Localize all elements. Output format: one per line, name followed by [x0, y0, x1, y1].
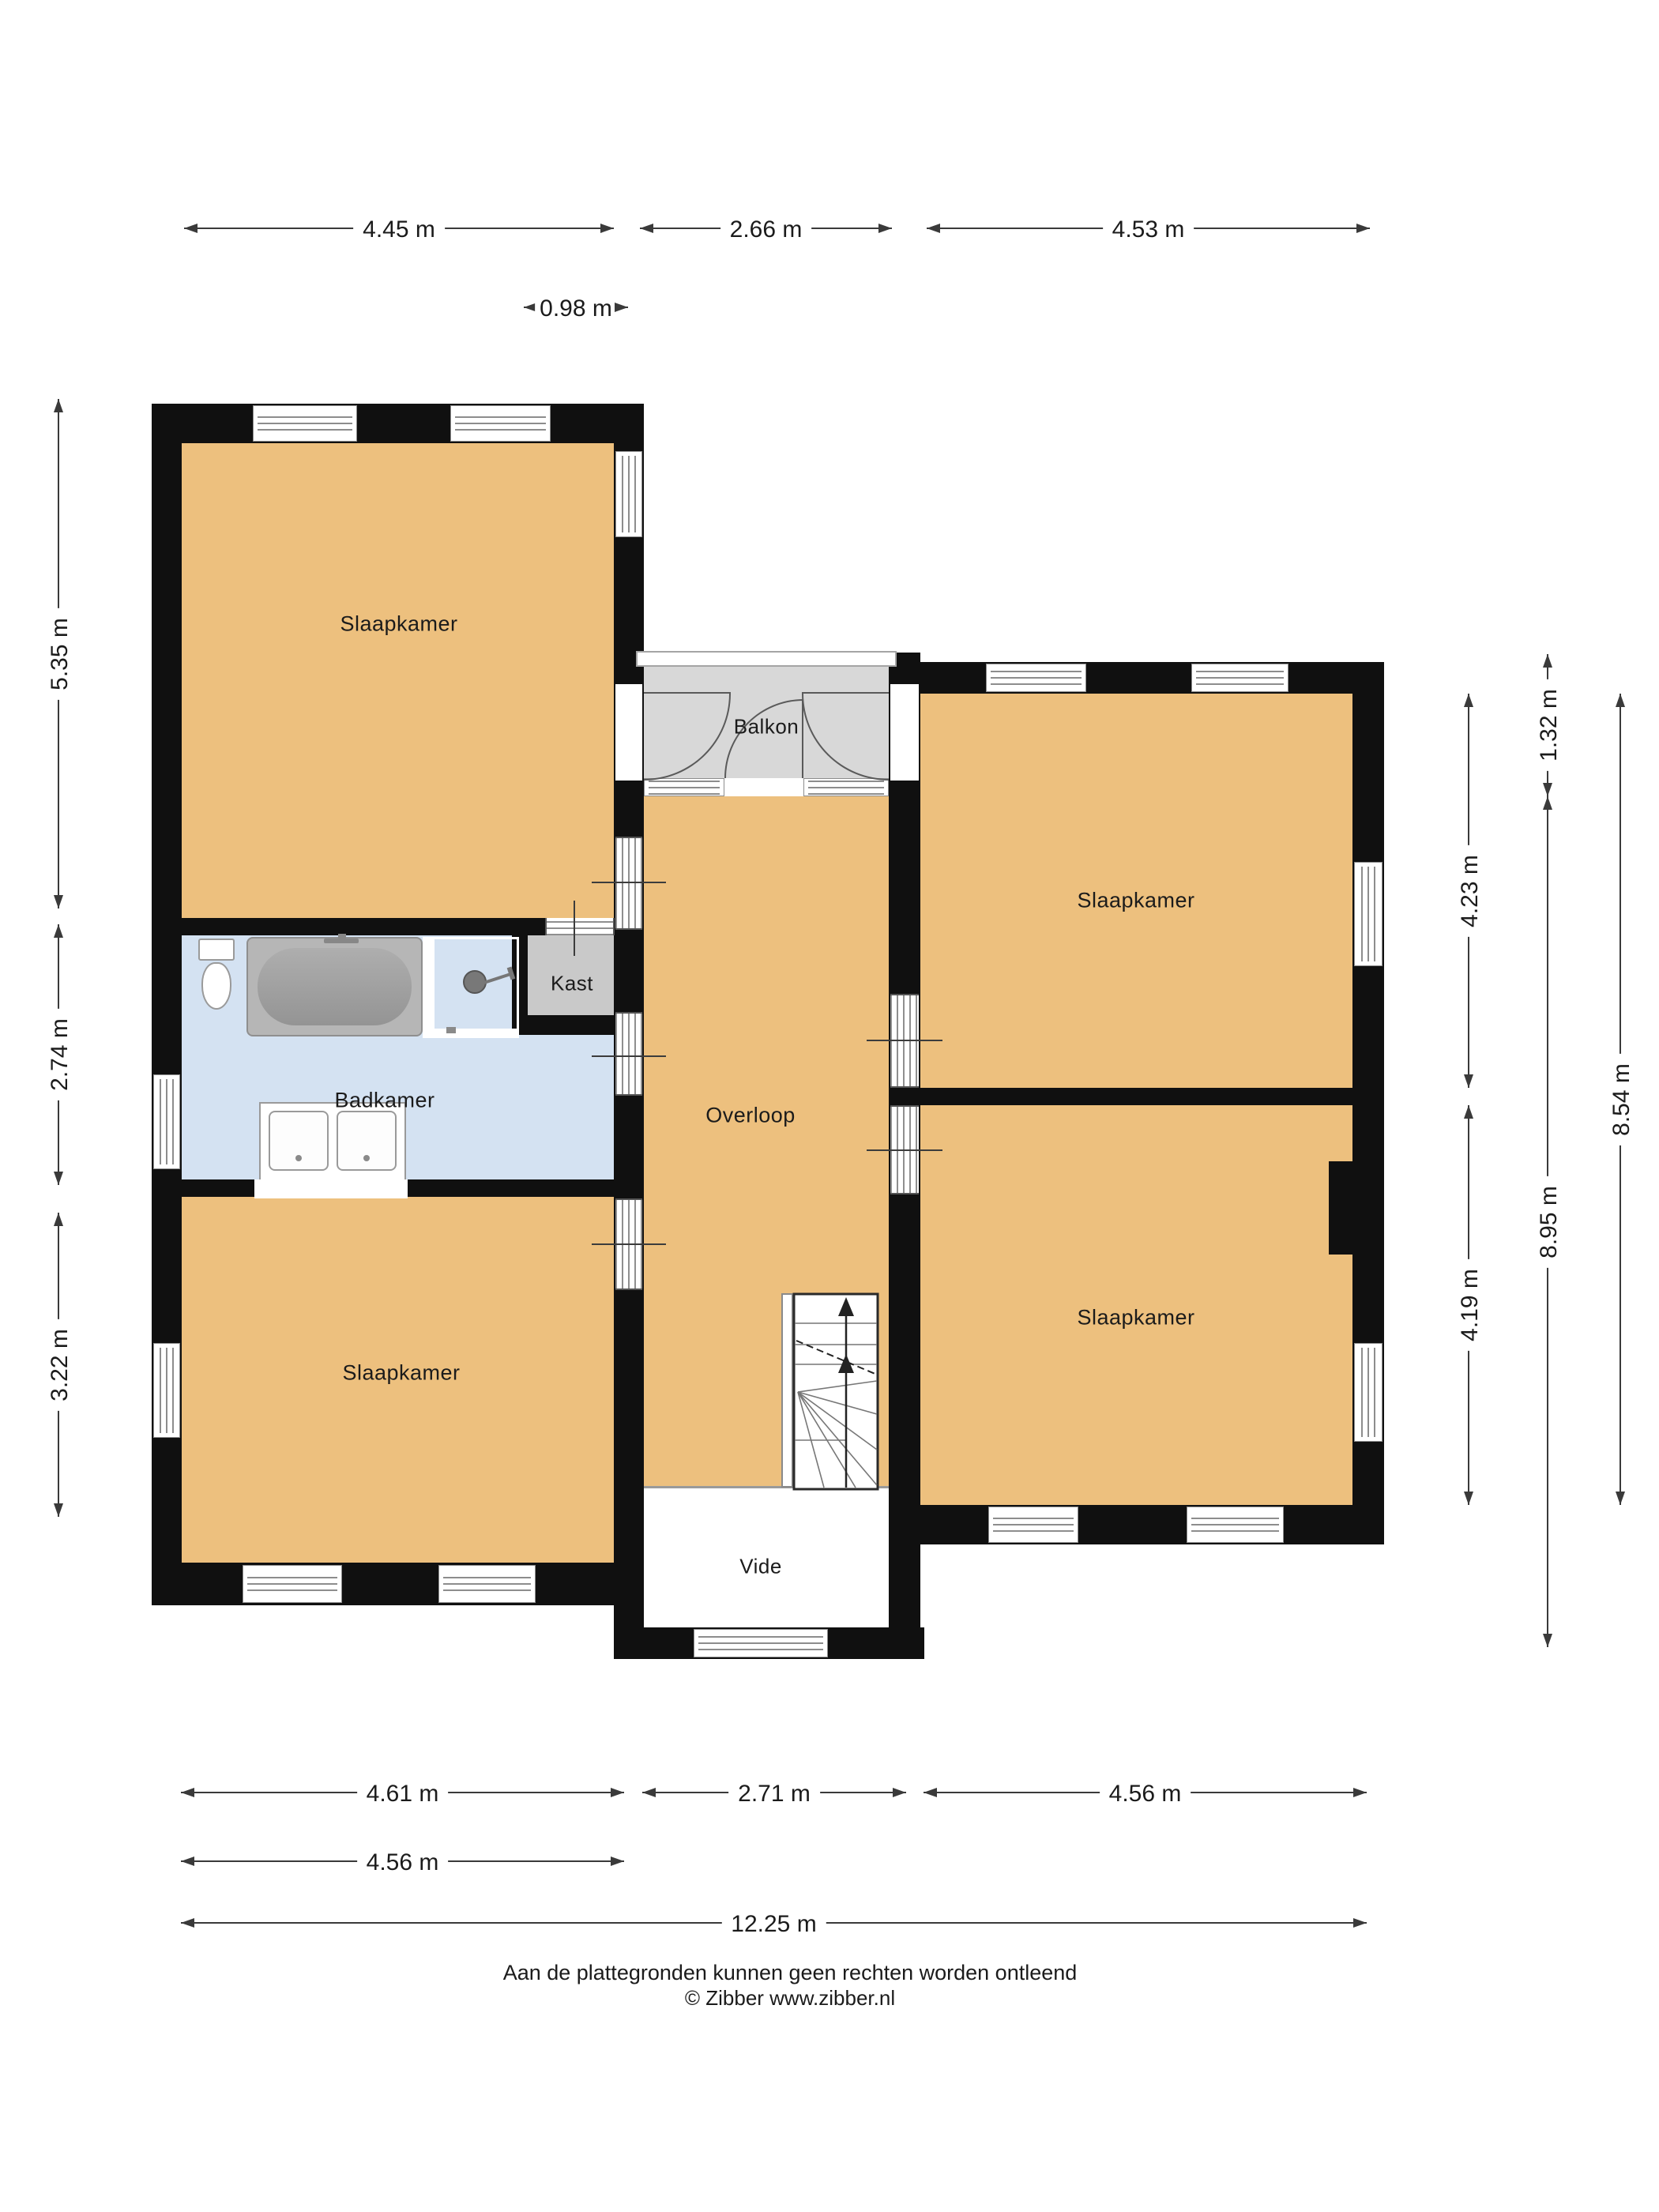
disclaimer-text: Aan de plattegronden kunnen geen rechten… [118, 1961, 1461, 1985]
door-tick [592, 1055, 666, 1057]
wall-bottom-right-section [914, 1505, 1384, 1544]
balcony-door-gap-left [615, 684, 642, 781]
dimension-left-bottom: 3.22 m [58, 1213, 59, 1517]
vanity-sill [254, 1179, 408, 1198]
dimension-label: 8.95 m [1536, 1176, 1563, 1268]
wall-closet-bottom [512, 1015, 614, 1035]
vanity-sink [269, 1111, 329, 1171]
door-tick [867, 1149, 942, 1151]
window [253, 405, 357, 442]
dimension-label: 8.54 m [1608, 1054, 1635, 1145]
toilet-bowl [201, 962, 231, 1010]
dimension-label: 2.71 m [728, 1781, 820, 1808]
window [243, 1565, 342, 1603]
dimension-bottom-right: 4.56 m [924, 1792, 1367, 1793]
window [694, 1629, 828, 1657]
staircase [781, 1288, 891, 1495]
dimension-balcony-height: 1.32 m [1547, 654, 1548, 796]
door-leaf [802, 692, 889, 694]
window [1354, 862, 1382, 966]
bathtub-faucet [324, 939, 359, 943]
door-tick [592, 1243, 666, 1245]
dimension-label: 2.74 m [47, 1009, 73, 1100]
shower-partition [423, 937, 432, 1038]
balcony-window-right [803, 778, 889, 796]
dimension-bottom-left: 4.61 m [181, 1792, 624, 1793]
dimension-right-total: 8.54 m [1619, 694, 1621, 1505]
room-label-bedroom-bottom-left: Slaapkamer [342, 1361, 460, 1386]
vanity-sink [337, 1111, 397, 1171]
window [1191, 664, 1288, 692]
sink-faucet-dot [363, 1155, 370, 1161]
toilet-tank [198, 939, 235, 961]
door-leaf [802, 699, 803, 778]
door-tick [574, 901, 575, 956]
sink-faucet-dot [295, 1155, 302, 1161]
dimension-closet-width: 0.98 m [524, 307, 628, 308]
wall-chimney-notch [1329, 1161, 1360, 1255]
dimension-middle-total: 8.95 m [1547, 796, 1548, 1647]
dimension-top-left: 4.45 m [184, 228, 614, 229]
dimension-total-width: 12.25 m [181, 1922, 1367, 1924]
door-opening-bathroom [615, 1012, 642, 1096]
bedroom-top-left-floor [182, 443, 614, 918]
wall-between-right-bedrooms [916, 1088, 1352, 1105]
bathtub-faucet [338, 934, 346, 939]
door-tick [867, 1040, 942, 1041]
balcony-door-gap-right [890, 684, 919, 781]
bathtub-basin [258, 948, 412, 1025]
room-label-closet: Kast [551, 972, 593, 996]
room-label-bedroom-top-left: Slaapkamer [340, 612, 457, 637]
dimension-label: 1.32 m [1536, 679, 1563, 771]
dimension-label: 0.98 m [535, 295, 617, 322]
door-opening-bedroom-top-left [615, 837, 642, 930]
window [153, 1343, 180, 1438]
window [615, 451, 642, 537]
door-leaf [644, 692, 731, 694]
wall-bottom-left-section [152, 1563, 644, 1605]
door-opening-closet [545, 918, 615, 935]
dimension-bottom-left-inner: 4.56 m [181, 1860, 624, 1862]
dimension-left-top: 5.35 m [58, 399, 59, 908]
dimension-top-middle: 2.66 m [640, 228, 892, 229]
dimension-label: 12.25 m [721, 1911, 826, 1938]
dimension-label: 2.66 m [720, 216, 812, 243]
copyright-text: © Zibber www.zibber.nl [118, 1986, 1461, 2011]
room-label-balcony: Balkon [734, 715, 799, 739]
dimension-label: 4.53 m [1103, 216, 1194, 243]
room-label-bedroom-bottom-right: Slaapkamer [1077, 1306, 1194, 1330]
wall-top-left-section [152, 404, 644, 443]
floorplan: Slaapkamer Slaapkamer Slaapkamer Slaapka… [0, 0, 1659, 2212]
room-label-bedroom-top-right: Slaapkamer [1077, 889, 1194, 913]
dimension-right-room-top: 4.23 m [1468, 694, 1469, 1088]
window [988, 1507, 1078, 1543]
room-label-void: Vide [739, 1555, 782, 1579]
dimension-right-room-bottom: 4.19 m [1468, 1105, 1469, 1505]
room-label-bathroom: Badkamer [334, 1089, 434, 1113]
window [1354, 1343, 1382, 1442]
dimension-label: 5.35 m [47, 608, 73, 700]
dimension-label: 4.61 m [357, 1781, 449, 1808]
shower-head-icon [463, 970, 487, 994]
dimension-label: 4.45 m [353, 216, 445, 243]
dimension-bottom-middle: 2.71 m [642, 1792, 906, 1793]
dimension-label: 3.22 m [47, 1319, 73, 1411]
shower-control [446, 1027, 456, 1033]
dimension-label: 4.56 m [357, 1849, 449, 1876]
window [438, 1565, 536, 1603]
balcony-window-left [644, 778, 724, 796]
window [450, 405, 551, 442]
window [153, 1074, 180, 1169]
dimension-top-right: 4.53 m [927, 228, 1370, 229]
window [1187, 1507, 1284, 1543]
balcony-railing [636, 651, 897, 667]
door-tick [592, 882, 666, 883]
wall-top-right-section [889, 662, 1384, 694]
balcony-door-gap [724, 778, 803, 796]
dimension-label: 4.56 m [1100, 1781, 1191, 1808]
room-label-landing: Overloop [705, 1104, 796, 1128]
dimension-label: 4.19 m [1457, 1259, 1484, 1351]
dimension-label: 4.23 m [1457, 845, 1484, 937]
dimension-left-middle: 2.74 m [58, 924, 59, 1185]
window [986, 664, 1086, 692]
